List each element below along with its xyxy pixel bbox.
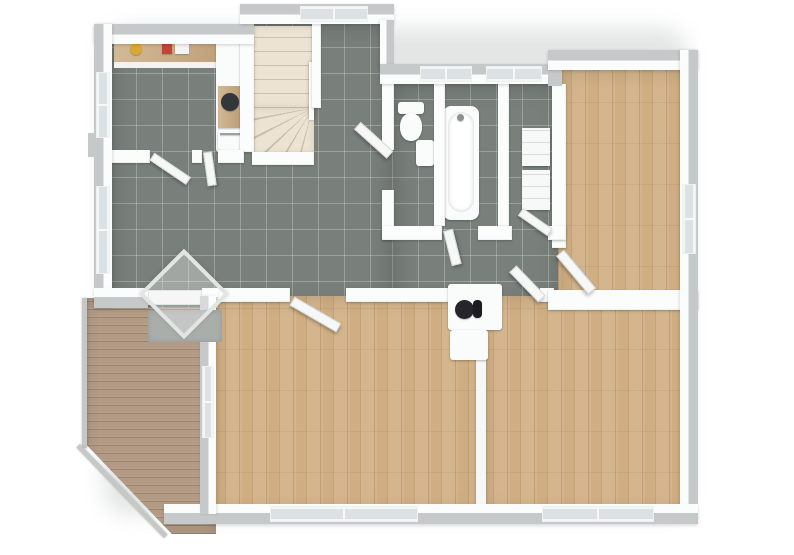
window-bedroom2-south <box>542 506 654 522</box>
kitchen-sink-basin <box>221 93 239 111</box>
fireplace-vent <box>473 300 482 318</box>
window-hall-west <box>96 186 110 274</box>
wall-ext-stairs-east <box>380 20 394 68</box>
wall-ext-kitchen-north <box>94 24 254 44</box>
kitchen-oven-handle <box>220 133 240 135</box>
staircase-straight-flight <box>252 26 314 108</box>
wall-utility-bedroom1 <box>552 84 566 248</box>
deck-railing-left <box>82 298 87 448</box>
toilet-bowl <box>400 113 422 141</box>
wall-kitchen-stairs <box>240 40 254 152</box>
wall-bath-utility <box>498 84 509 226</box>
floor-plan-canvas <box>0 0 794 555</box>
wall-kitchen-south-b <box>218 150 244 163</box>
fireplace-hearth <box>450 330 488 360</box>
wall-corridor-north-a <box>382 226 442 240</box>
wall-wc-bath <box>434 84 445 226</box>
wall-wc-west <box>382 84 394 150</box>
wall-ext-right <box>680 50 698 522</box>
wall-stairs-east <box>312 24 321 108</box>
exterior-pillar <box>88 133 96 157</box>
utility-shelf-upper <box>522 128 550 166</box>
bathtub-inner <box>448 112 474 212</box>
window-bedroom1-east <box>682 184 696 254</box>
kitchen-item-yellow-bowl <box>130 43 142 55</box>
window-stairs-north <box>300 6 368 22</box>
window-living-west <box>202 366 214 438</box>
utility-shelf-lower <box>522 170 550 210</box>
bathtub-faucet <box>457 114 464 121</box>
fireplace-flue <box>455 300 474 319</box>
staircase-winder <box>252 108 314 154</box>
wall-bedrooms-divider <box>548 290 698 310</box>
living-room-wood-floor <box>212 296 482 514</box>
wall-corridor-north-b <box>478 226 512 240</box>
bedroom2-wood-floor <box>480 296 694 514</box>
window-bath-north-1 <box>420 66 472 82</box>
window-bath-north-2 <box>486 66 542 82</box>
wall-kitchen-south-post <box>192 150 202 163</box>
wc-corner-sink <box>416 140 434 166</box>
wall-kitchen-south-a <box>112 150 150 163</box>
window-living-south <box>270 506 418 522</box>
window-kitchen-west <box>96 72 110 138</box>
wall-corridor-south-b <box>346 288 450 302</box>
wall-stairs-south <box>252 152 314 165</box>
wall-ext-bedroom1-north <box>548 50 698 70</box>
